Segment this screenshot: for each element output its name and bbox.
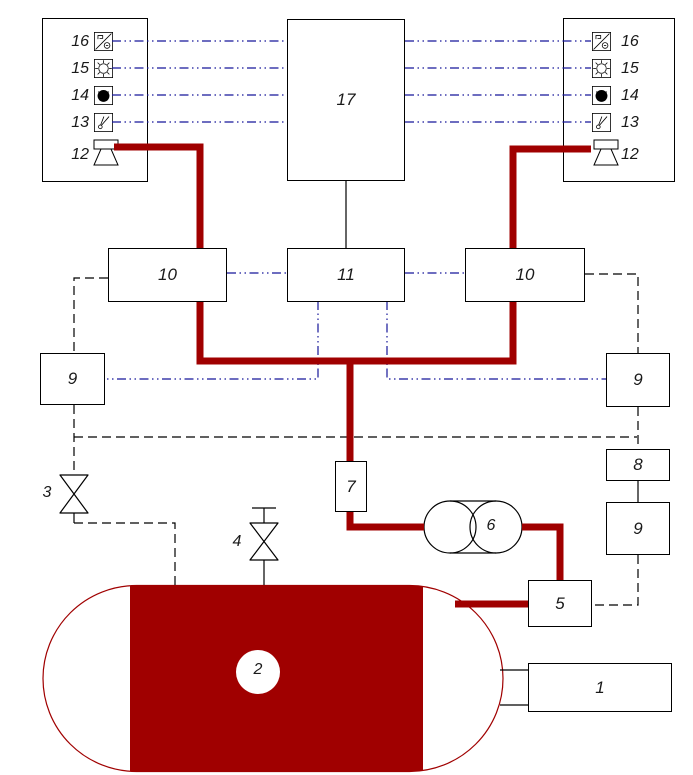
block-10-left-label: 10 (158, 265, 177, 285)
item-number: 12 (55, 145, 89, 164)
block-9-lower-label: 9 (633, 519, 642, 539)
panel-left-row-16: 16 (43, 32, 147, 52)
panel-left-row-15: 15 (43, 59, 147, 79)
tank-outline (43, 586, 503, 772)
panel-right-row-13: 13 (564, 113, 674, 133)
recorder-icon (94, 32, 113, 51)
block-5: 5 (528, 580, 592, 627)
item-number: 16 (621, 32, 661, 51)
indicator-icon (592, 86, 611, 105)
item-number: 14 (55, 86, 89, 105)
tank-fill (130, 585, 423, 772)
valve-4-symbol (250, 523, 278, 560)
panel-right-row-14: 14 (564, 86, 674, 106)
valve-3-label: 3 (38, 484, 56, 502)
block-10-right-label: 10 (516, 265, 535, 285)
red-pipe-lines (197, 144, 561, 605)
dashed-impulse-lines (74, 274, 638, 605)
block-9-left: 9 (40, 353, 105, 405)
block-8-label: 8 (633, 455, 642, 475)
block-1: 1 (528, 663, 672, 712)
panel-left-row-12: 12 (43, 139, 147, 167)
tank-vessel (43, 585, 503, 772)
valve-4-label: 4 (228, 533, 246, 551)
siren-icon (591, 139, 622, 167)
block-9-left-label: 9 (68, 369, 77, 389)
block-7-label: 7 (346, 477, 355, 497)
item-number: 15 (621, 59, 661, 78)
block-11-label: 11 (337, 265, 355, 285)
block-9-right: 9 (606, 353, 670, 407)
panel-right-row-12: 12 (564, 139, 674, 167)
item-number: 13 (55, 113, 89, 132)
lamp-icon (94, 59, 113, 78)
block-1-label: 1 (595, 678, 604, 698)
block-8: 8 (606, 449, 670, 481)
block-17: 17 (287, 19, 405, 181)
item-number: 12 (621, 145, 661, 164)
recorder-icon (592, 32, 611, 51)
panel-right-row-16: 16 (564, 32, 674, 52)
annunciator-panel-right: 16 15 (563, 18, 675, 182)
switch-icon (94, 113, 113, 132)
schematic-canvas: 17 10 11 10 9 9 8 9 7 5 1 2 3 4 6 16 (0, 0, 693, 775)
meter-6-symbol (424, 501, 522, 553)
item-number: 14 (621, 86, 661, 105)
panel-right-row-15: 15 (564, 59, 674, 79)
block-5-label: 5 (555, 594, 564, 614)
switch-icon (592, 113, 611, 132)
block-17-label: 17 (337, 90, 356, 110)
indicator-icon (94, 86, 113, 105)
block-7: 7 (335, 461, 367, 512)
annunciator-panel-left: 16 15 (42, 18, 148, 182)
lamp-icon (592, 59, 611, 78)
block-10-left: 10 (108, 248, 227, 302)
valve-3-symbol (60, 475, 88, 513)
block-11: 11 (287, 248, 405, 302)
block-9-right-label: 9 (633, 370, 642, 390)
siren-icon (91, 139, 122, 167)
item-number: 16 (55, 32, 89, 51)
block-9-lower: 9 (606, 502, 670, 555)
panel-left-row-14: 14 (43, 86, 147, 106)
tank-label: 2 (248, 661, 268, 679)
item-number: 15 (55, 59, 89, 78)
block-6-label: 6 (482, 517, 500, 535)
panel-left-row-13: 13 (43, 113, 147, 133)
block-10-right: 10 (465, 248, 585, 302)
item-number: 13 (621, 113, 661, 132)
